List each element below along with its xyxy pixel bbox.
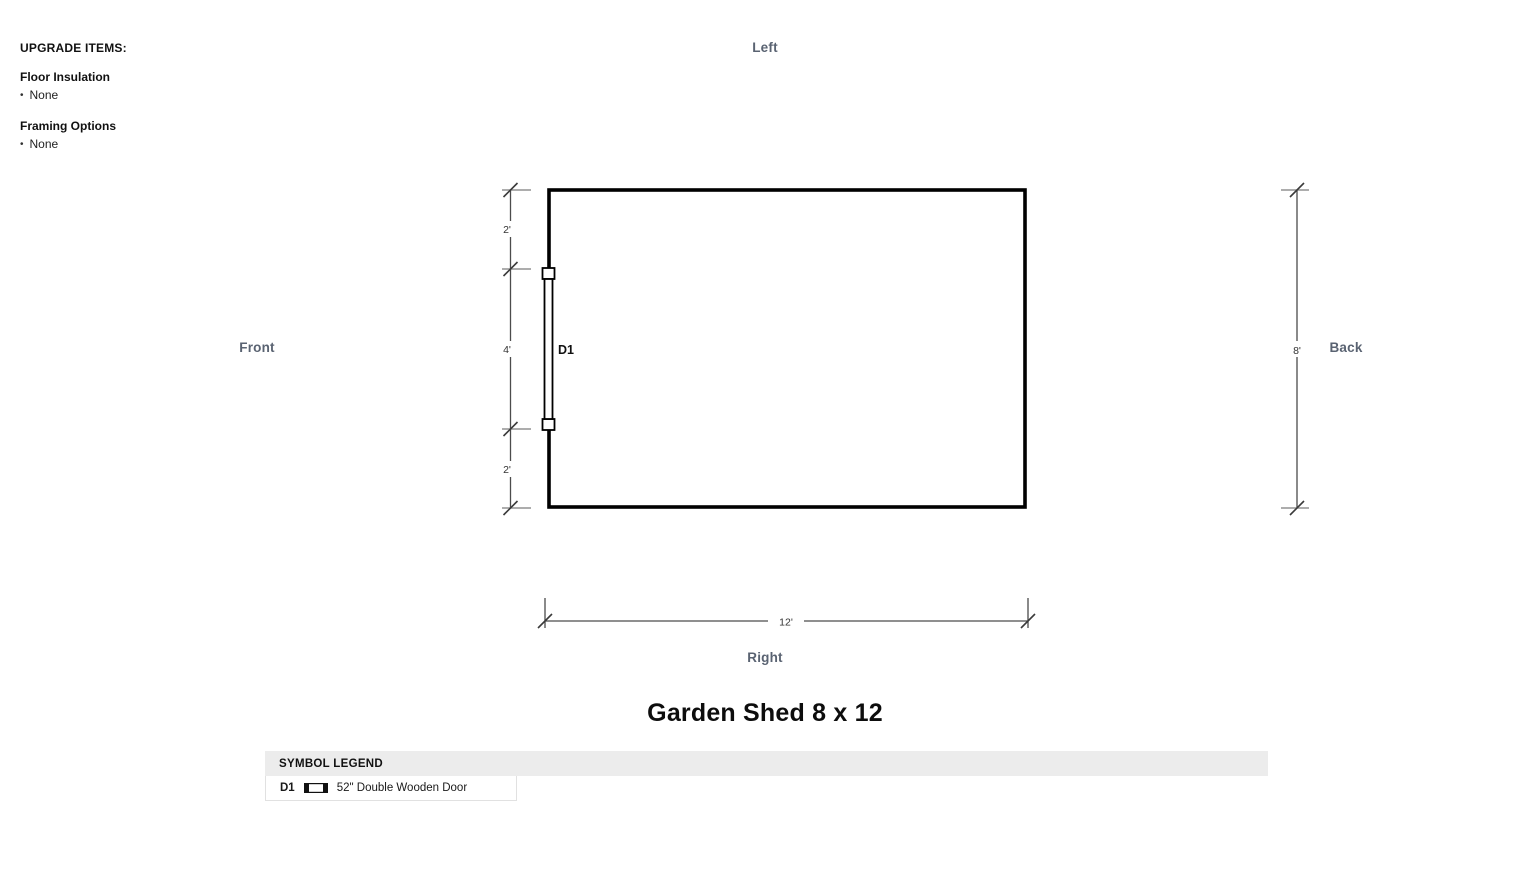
bottom-dimension: 12' (538, 598, 1035, 629)
double-door-icon (304, 783, 328, 793)
shed-wall-outline (549, 190, 1025, 507)
left-dimension-label-top: 2' (503, 224, 511, 236)
door-jamb-top (543, 268, 555, 279)
symbol-legend: SYMBOL LEGEND D1 52" Double Wooden Door (265, 751, 1268, 801)
left-dimension-chain: 2' 4' 2' (498, 183, 531, 515)
floor-plan-page: UPGRADE ITEMS: Floor Insulation None Fra… (0, 0, 1530, 890)
plan-title: Garden Shed 8 x 12 (565, 699, 965, 728)
right-dimension: 8' (1281, 183, 1309, 515)
legend-header: SYMBOL LEGEND (265, 751, 1268, 776)
bottom-dimension-label: 12' (779, 617, 793, 629)
double-door-symbol: D1 (543, 268, 575, 430)
legend-door-description: 52" Double Wooden Door (337, 782, 467, 794)
door-leaf (545, 279, 553, 419)
left-dimension-label-middle: 4' (503, 344, 511, 356)
legend-row: D1 52" Double Wooden Door (265, 776, 517, 801)
door-code-label: D1 (558, 343, 574, 357)
right-dimension-label: 8' (1293, 345, 1301, 357)
legend-door-code: D1 (280, 782, 295, 794)
left-dimension-label-bottom: 2' (503, 464, 511, 476)
door-jamb-bottom (543, 419, 555, 430)
